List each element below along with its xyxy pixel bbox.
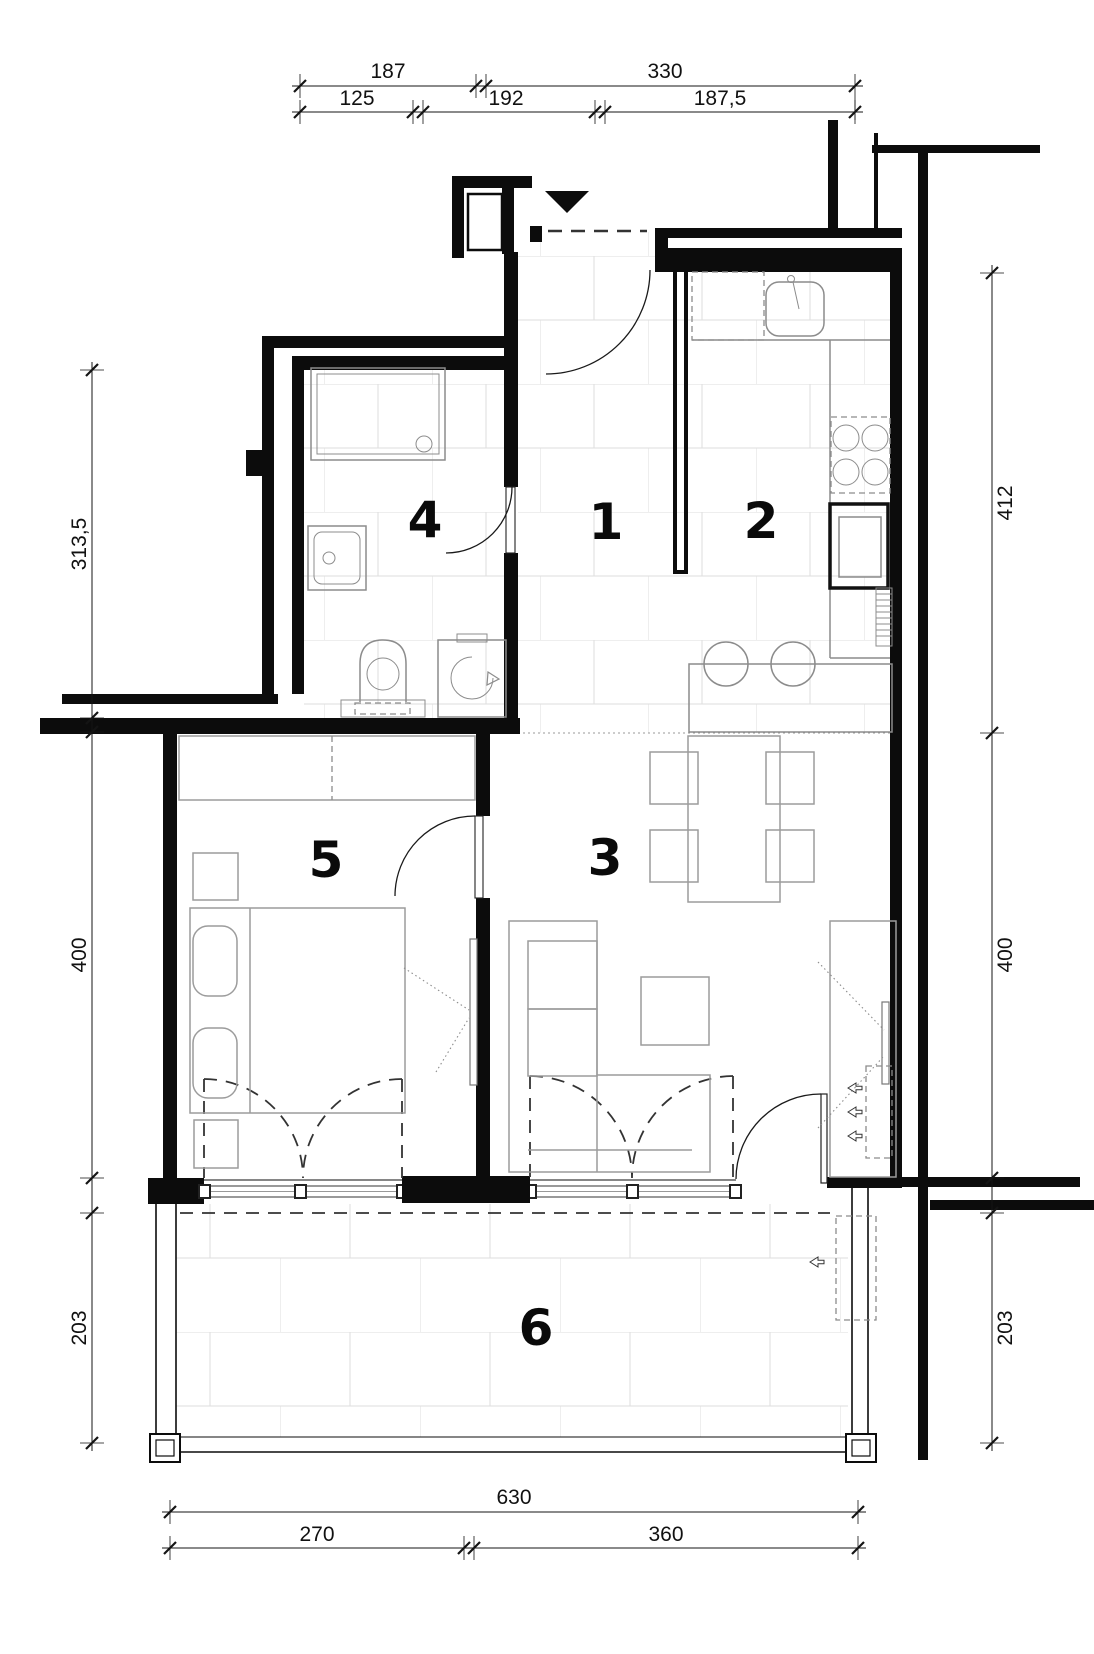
dining-chair-1 bbox=[650, 752, 698, 804]
bedroom-french-door-swings bbox=[204, 1079, 402, 1178]
top-wall-inner bbox=[668, 248, 902, 272]
dim-top-187: 187 bbox=[370, 60, 405, 83]
dim-top-330: 330 bbox=[647, 60, 682, 83]
hall-left-wall-upper bbox=[504, 252, 518, 487]
floor-plan-drawing: 1 2 3 4 5 6 187 330 125 192 187,5 313,5 … bbox=[0, 0, 1094, 1654]
dimension-bottom-row2: 270 360 bbox=[162, 1523, 866, 1560]
dining-chair-2 bbox=[650, 830, 698, 882]
sofa-chaise-lines bbox=[528, 1076, 692, 1172]
dim-left-313-5: 313,5 bbox=[68, 518, 91, 571]
bedroom-left-wall bbox=[163, 734, 177, 1178]
dim-right-412: 412 bbox=[994, 485, 1017, 520]
dimension-top-row1: 187 330 bbox=[292, 60, 863, 120]
room-label-4: 4 bbox=[408, 491, 443, 549]
nightstand-2 bbox=[194, 1120, 238, 1168]
dimension-left: 313,5 400 203 bbox=[68, 362, 104, 1451]
entry-niche-left bbox=[452, 176, 464, 258]
south-wall-right-chunk bbox=[827, 1177, 902, 1188]
ext-wall-horizontal-2 bbox=[930, 1200, 1094, 1210]
room-label-2: 2 bbox=[744, 492, 779, 550]
bedroom-living-wall-lower bbox=[476, 898, 490, 1178]
dining-chair-3 bbox=[766, 752, 814, 804]
entry-left-jamb bbox=[530, 226, 542, 242]
top-wall-outer bbox=[655, 228, 902, 238]
boundary-notch bbox=[246, 450, 262, 476]
dining-chair-4 bbox=[766, 830, 814, 882]
dim-bottom-360: 360 bbox=[648, 1523, 683, 1546]
dim-right-203: 203 bbox=[994, 1310, 1017, 1345]
bed bbox=[190, 908, 405, 1113]
floor-plan-page: 1 2 3 4 5 6 187 330 125 192 187,5 313,5 … bbox=[0, 0, 1094, 1654]
bathroom-door-leaf bbox=[506, 487, 515, 553]
dim-left-400: 400 bbox=[68, 937, 91, 972]
dimension-top-row2: 125 192 187,5 bbox=[292, 87, 863, 124]
dimension-bottom-row1: 630 bbox=[162, 1486, 866, 1524]
living-french-door-swings bbox=[530, 1076, 733, 1178]
nightstand-1 bbox=[193, 853, 238, 900]
airflow-arrow-2 bbox=[848, 1107, 862, 1117]
boundary-wall-left bbox=[262, 336, 274, 698]
floor-finishes bbox=[176, 232, 890, 1437]
bedroom-door-leaf bbox=[475, 816, 483, 898]
wardrobe bbox=[179, 736, 475, 800]
dim-right-400: 400 bbox=[994, 937, 1017, 972]
partition-line-b bbox=[684, 252, 688, 572]
dim-top-192: 192 bbox=[488, 87, 523, 110]
sofa-outline bbox=[509, 921, 710, 1172]
dim-bottom-630: 630 bbox=[496, 1486, 531, 1509]
living-tv bbox=[882, 1002, 889, 1084]
bedroom-door-swing bbox=[395, 816, 475, 896]
pillow-2 bbox=[193, 1028, 237, 1098]
entry-right-jamb bbox=[655, 228, 668, 272]
dimension-right: 412 400 203 bbox=[980, 265, 1017, 1451]
bedroom-tv-sightlines bbox=[404, 968, 469, 1072]
balcony-cap-left bbox=[150, 1434, 180, 1462]
bathroom-left-wall bbox=[292, 356, 304, 694]
entrance-marker-icon bbox=[545, 191, 589, 213]
entry-column bbox=[468, 194, 502, 250]
room-label-5: 5 bbox=[309, 831, 344, 889]
balcony-door-swing bbox=[736, 1094, 821, 1179]
balcony-door-leaf bbox=[821, 1094, 827, 1183]
bedroom-tv bbox=[470, 939, 477, 1085]
room-label-3: 3 bbox=[588, 829, 623, 887]
bedroom-french-door-leaves bbox=[204, 1079, 402, 1178]
room-label-1: 1 bbox=[589, 493, 624, 551]
dim-top-187-5: 187,5 bbox=[694, 87, 747, 110]
window-pier bbox=[402, 1176, 530, 1203]
sofa-cushion-1 bbox=[528, 941, 597, 1009]
neighbor-wall-band bbox=[62, 694, 278, 704]
balcony-cap-right bbox=[846, 1434, 876, 1462]
partition-line-a bbox=[673, 252, 677, 572]
top-stub-wall bbox=[828, 120, 838, 232]
bedroom-top-wall bbox=[40, 718, 520, 734]
dim-top-125: 125 bbox=[339, 87, 374, 110]
airflow-arrow-3 bbox=[848, 1131, 862, 1141]
boundary-wall-top bbox=[262, 336, 508, 348]
pillow-1 bbox=[193, 926, 237, 996]
bedroom-furniture bbox=[179, 736, 477, 1168]
building-top-wall bbox=[872, 145, 1040, 153]
room-label-6: 6 bbox=[519, 1299, 554, 1357]
living-furniture bbox=[509, 736, 896, 1177]
south-windows bbox=[199, 1076, 827, 1203]
sofa-cushion-2 bbox=[528, 1009, 597, 1076]
building-right-wall bbox=[918, 153, 928, 1460]
dim-left-203: 203 bbox=[68, 1310, 91, 1345]
bedroom-living-wall-upper bbox=[476, 734, 490, 816]
bathroom-tiles bbox=[304, 370, 504, 718]
coffee-table bbox=[641, 977, 709, 1045]
south-wall-left-pier bbox=[148, 1178, 204, 1204]
entry-niche-right bbox=[502, 188, 514, 254]
balcony-tiles bbox=[176, 1204, 848, 1437]
partition-end-cap bbox=[673, 570, 688, 574]
dim-bottom-270: 270 bbox=[299, 1523, 334, 1546]
living-tv-sightlines bbox=[818, 962, 884, 1128]
